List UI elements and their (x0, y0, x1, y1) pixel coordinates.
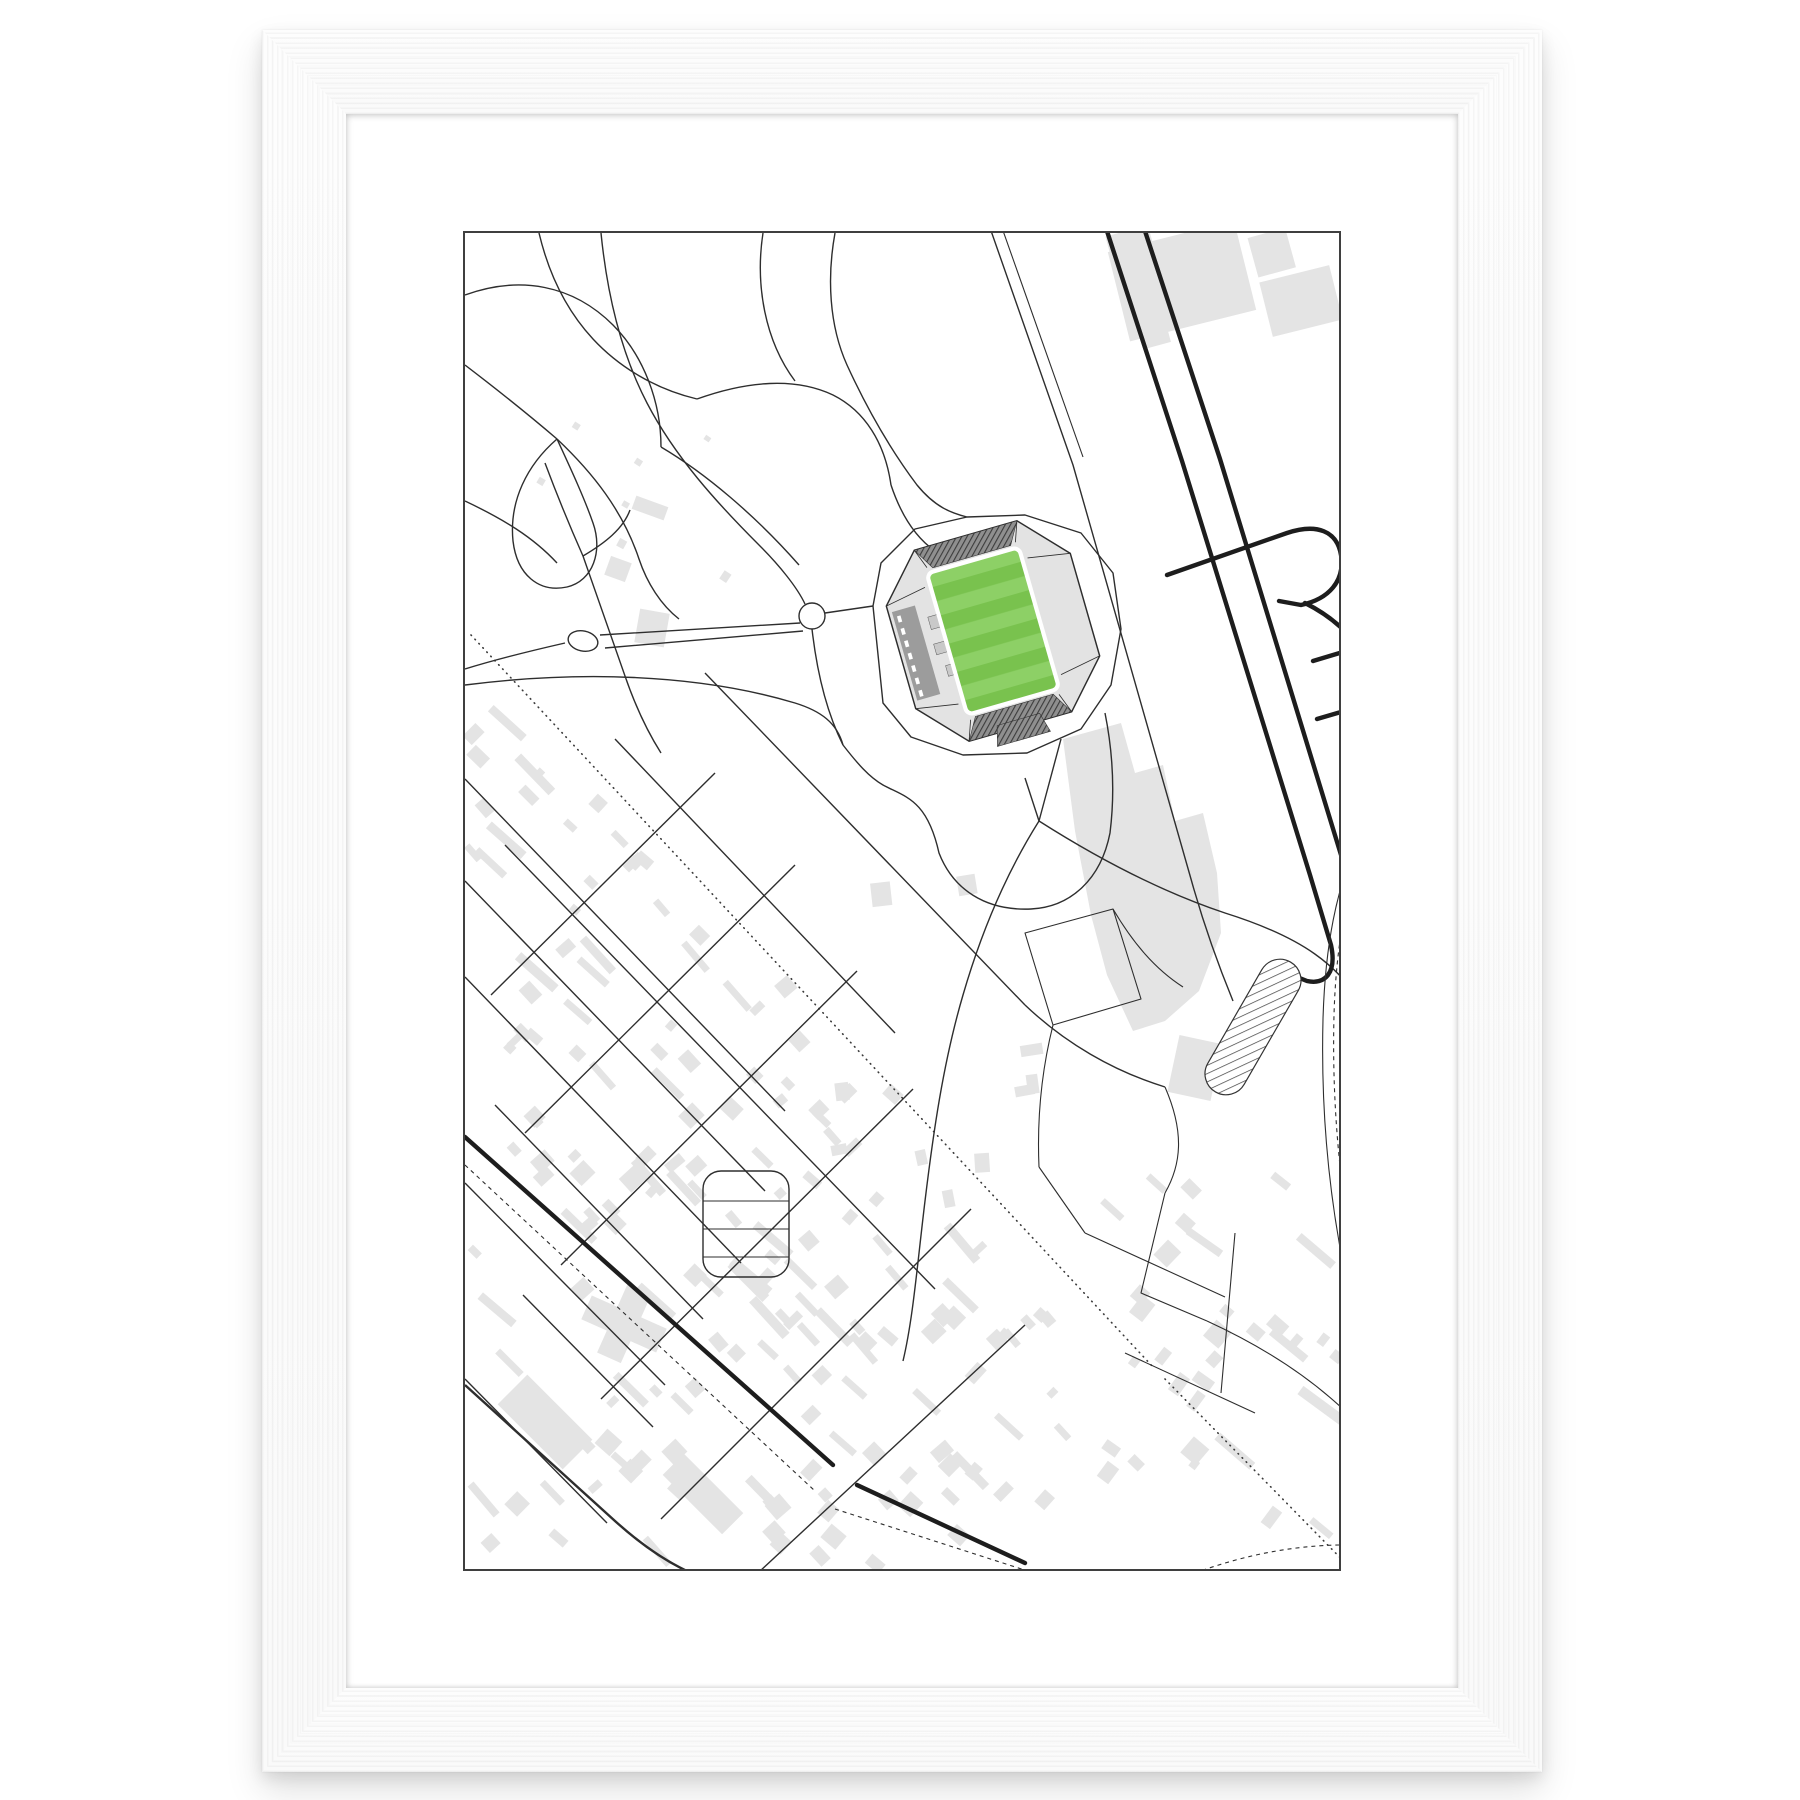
building-footprint (942, 1277, 979, 1313)
building-footprint (1180, 1178, 1202, 1200)
building-footprint (466, 745, 490, 769)
building-footprint (1153, 1240, 1181, 1268)
building-footprint (797, 1322, 820, 1347)
building-footprint (703, 435, 711, 443)
building-footprint (651, 1067, 684, 1100)
building-footprint (568, 1045, 586, 1063)
building-footprint (812, 1365, 832, 1385)
building-footprint (1329, 1349, 1341, 1364)
forest-paths (465, 233, 967, 753)
building-footprint (774, 975, 797, 998)
building-footprint (616, 538, 627, 549)
building-footprint (1054, 1423, 1072, 1441)
building-footprint (468, 1245, 482, 1259)
stadium (874, 509, 1116, 765)
stadium-location-map (465, 233, 1341, 1571)
building-footprint (719, 1096, 744, 1121)
building-footprint (643, 1536, 672, 1567)
roundabout (799, 603, 825, 629)
building-footprint (604, 1212, 627, 1235)
main-road-diagonal (465, 1137, 1341, 1571)
building-footprint (1168, 1372, 1190, 1396)
building-footprint (824, 1275, 849, 1300)
building-footprint (540, 1480, 565, 1506)
building-footprint (829, 1431, 857, 1457)
building-footprint (1297, 1386, 1341, 1426)
building-footprint (664, 1153, 685, 1173)
building-footprint (588, 794, 608, 814)
building-footprint (719, 570, 731, 583)
building-footprint (474, 847, 507, 878)
building-footprint (1154, 1347, 1172, 1366)
building-footprint (681, 941, 710, 973)
building-footprint (555, 938, 576, 958)
frame-side-left (262, 30, 346, 1772)
building-footprint (1248, 233, 1296, 278)
building-footprint (1246, 1322, 1266, 1342)
building-footprint (788, 1030, 810, 1052)
building-footprint (478, 1292, 517, 1327)
building-footprint (849, 1319, 865, 1336)
building-footprint (723, 980, 752, 1012)
building-footprint (1146, 1173, 1167, 1193)
building-footprint (912, 1388, 941, 1416)
building-footprint (823, 1127, 842, 1147)
building-footprint (974, 1153, 990, 1173)
building-footprint (572, 422, 581, 431)
building-footprint (653, 899, 670, 918)
building-footprint (563, 998, 592, 1025)
teardrop-loop (566, 628, 600, 654)
building-footprint (885, 1265, 909, 1291)
building-footprint (1296, 1233, 1336, 1269)
building-footprint (515, 952, 559, 992)
building-footprint (815, 1307, 854, 1347)
building-footprint (1261, 1506, 1283, 1529)
building-footprint (595, 1429, 623, 1457)
building-footprint (842, 1209, 859, 1226)
building-footprint (504, 1491, 530, 1517)
building-footprint (475, 798, 495, 818)
building-footprint (865, 1554, 886, 1571)
building-footprint (1129, 1295, 1155, 1322)
building-footprint (802, 1170, 822, 1189)
building-footprint (536, 477, 545, 486)
building-footprint (1034, 1489, 1055, 1510)
building-footprint (488, 705, 527, 741)
building-footprint (751, 1147, 773, 1169)
building-footprint (611, 830, 629, 848)
building-footprint (1046, 1387, 1058, 1399)
building-footprint (685, 1377, 706, 1398)
building-footprint (518, 785, 539, 806)
building-footprint (965, 1362, 987, 1385)
building-footprint (820, 1524, 846, 1550)
building-footprint (465, 723, 485, 745)
building-footprint (621, 500, 630, 508)
building-footprint (507, 1142, 522, 1157)
building-footprint (725, 1210, 742, 1228)
frame-side-right (1458, 30, 1542, 1772)
building-footprint (634, 458, 643, 467)
building-footprint (1186, 1228, 1223, 1258)
building-footprint (818, 1487, 833, 1502)
building-footprint (783, 1365, 802, 1385)
building-footprint (757, 1339, 779, 1360)
frame-side-top (262, 30, 1542, 114)
boundary-dotted-line (471, 635, 1153, 1367)
building-footprint (1309, 1517, 1334, 1539)
building-footprint (649, 1384, 663, 1398)
building-footprint (1214, 1433, 1255, 1470)
building-footprint (1219, 1304, 1234, 1319)
building-footprint (869, 1191, 885, 1207)
building-footprint (481, 1533, 501, 1553)
building-footprint (944, 1223, 981, 1264)
building-footprint (817, 1500, 839, 1523)
building-footprint (834, 1082, 850, 1101)
building-footprint (941, 1487, 960, 1506)
building-footprint (994, 1413, 1024, 1441)
building-footprint (548, 1529, 568, 1548)
building-footprint (914, 1149, 928, 1166)
building-footprint (800, 1459, 822, 1482)
building-footprint (872, 1234, 892, 1256)
building-footprint (841, 1375, 867, 1400)
building-footprint (689, 925, 710, 946)
building-footprint (727, 1344, 746, 1363)
building-footprint (1205, 1350, 1223, 1368)
building-footprint (1127, 1454, 1145, 1472)
building-footprint (519, 981, 543, 1005)
building-footprint (613, 1372, 649, 1408)
building-footprint (588, 1479, 603, 1494)
building-footprint (1270, 1172, 1291, 1191)
building-footprint (870, 881, 892, 907)
poster: INFORMATION architecthpp year2021 locati… (463, 231, 1341, 1571)
building-footprint (495, 1349, 524, 1377)
building-footprint (899, 1466, 917, 1485)
building-footprint (798, 1230, 820, 1252)
building-footprint (877, 1326, 899, 1347)
building-footprint (708, 1332, 729, 1353)
building-footprint (569, 1160, 595, 1186)
building-footprint (993, 1481, 1014, 1502)
frame-side-bottom (262, 1688, 1542, 1772)
building-footprint (568, 1149, 582, 1163)
building-footprint (809, 1545, 830, 1567)
building-footprint (606, 1395, 619, 1408)
building-footprint (749, 1000, 765, 1016)
building-footprint (774, 1187, 787, 1200)
building-footprint (670, 1392, 693, 1415)
building-footprint (571, 1277, 595, 1301)
building-footprint (695, 1269, 724, 1297)
building-footprint (685, 1155, 707, 1177)
building-footprint (1100, 1198, 1124, 1221)
building-footprint (1101, 1439, 1121, 1457)
bridleway-dashed (1165, 1545, 1341, 1571)
building-footprint (1020, 1043, 1044, 1057)
building-footprint (781, 1076, 796, 1091)
building-footprint (1316, 1332, 1330, 1347)
building-footprint (942, 1189, 956, 1208)
hatched-parking (1197, 952, 1308, 1103)
framed-poster-photo: INFORMATION architecthpp year2021 locati… (0, 0, 1800, 1800)
building-footprint (650, 1043, 668, 1061)
building-footprint (1186, 1390, 1206, 1412)
building-footprint (801, 1405, 822, 1426)
building-footprint (862, 1441, 887, 1466)
building-footprint (808, 1099, 829, 1120)
building-footprint (468, 1482, 500, 1518)
building-footprint (678, 1049, 701, 1073)
building-footprint (1097, 1461, 1119, 1484)
building-footprint (563, 818, 578, 832)
building-footprint (746, 1066, 764, 1084)
building-footprint (583, 875, 598, 890)
building-footprint (486, 822, 527, 859)
mat-border: INFORMATION architecthpp year2021 locati… (346, 114, 1458, 1688)
field-roads (465, 635, 1341, 1571)
building-footprint (830, 1143, 847, 1156)
wood-frame: INFORMATION architecthpp year2021 locati… (262, 30, 1542, 1772)
